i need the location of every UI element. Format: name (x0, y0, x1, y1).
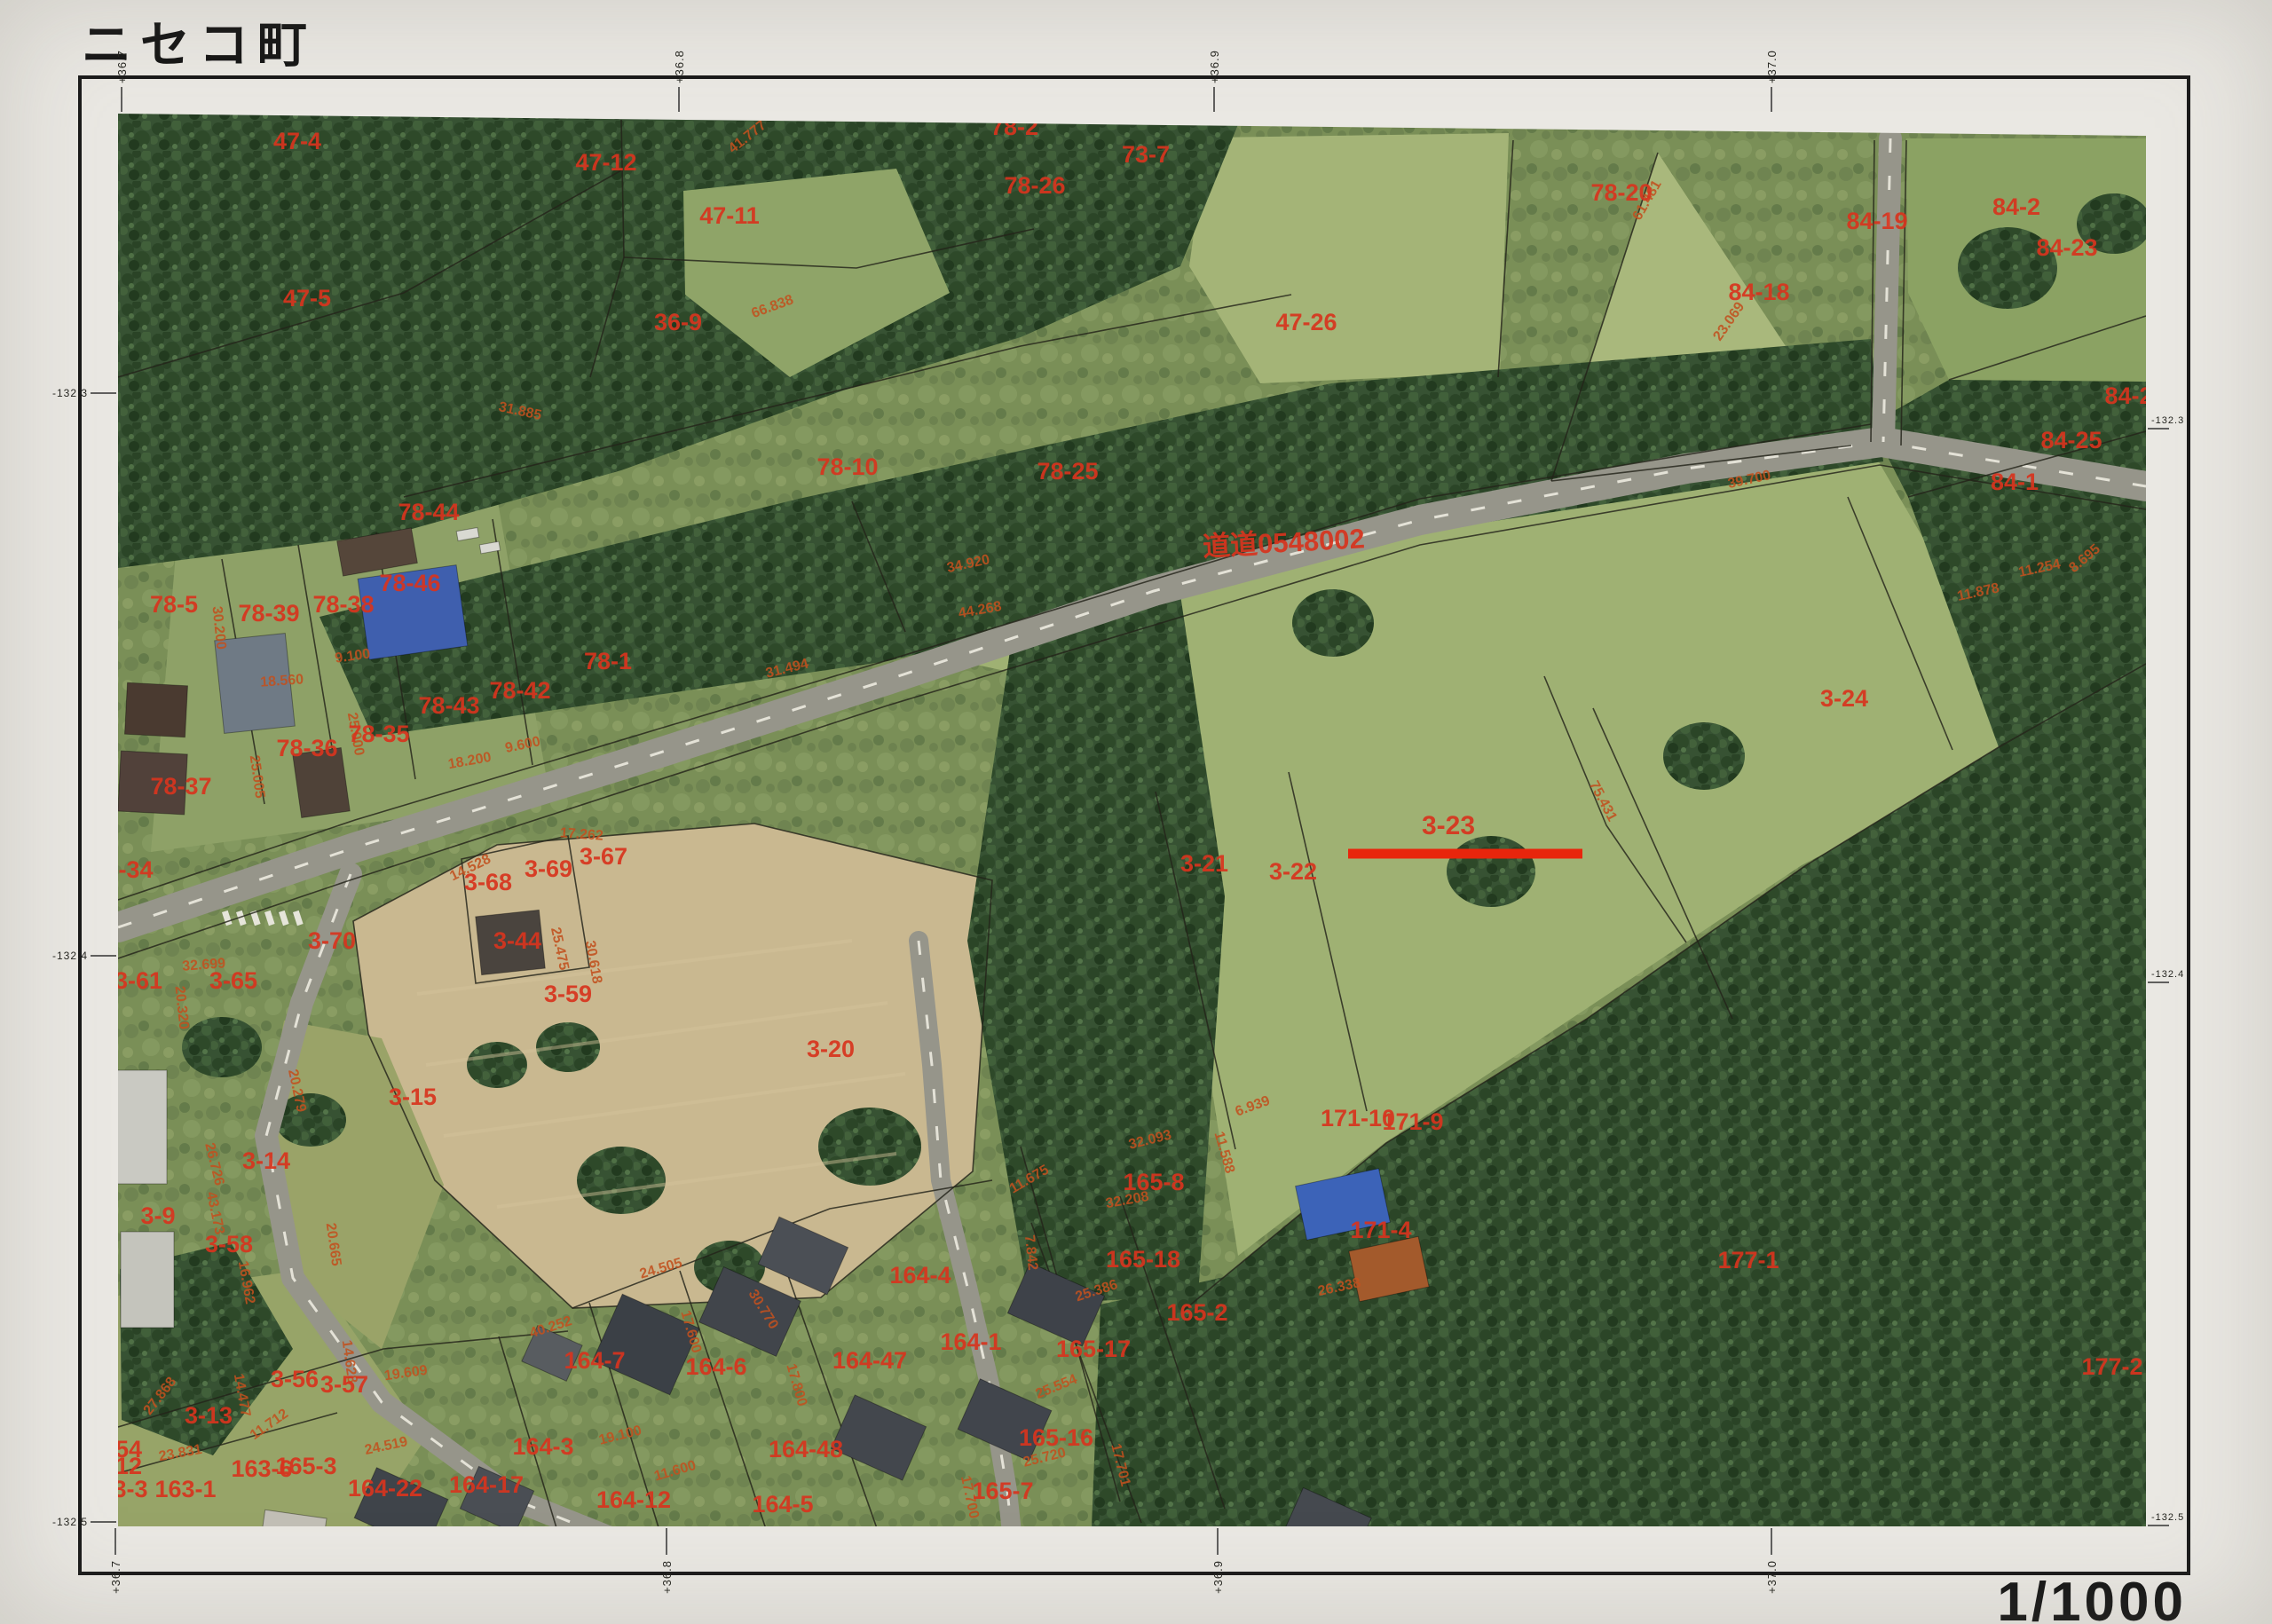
tree-clump (467, 1042, 527, 1088)
parcel-number-label: 84-26 (2104, 382, 2165, 409)
parcel-number-label: 165-16 (1019, 1424, 1093, 1451)
coordinate-tick-label: +37.0 (1765, 50, 1779, 83)
parcel-number-label: 165-8 (1123, 1169, 1184, 1195)
parcel-number-label: 3-9 (140, 1202, 175, 1229)
measurement-label: 18.560 (260, 672, 304, 690)
parcel-number-label: 3-68 (464, 869, 512, 895)
parcel-number-label: 36-9 (654, 309, 702, 335)
parcel-number-label: 163-1 (154, 1476, 216, 1502)
building-roof (121, 1232, 174, 1328)
coordinate-tick-label: -132.3 (52, 387, 88, 399)
parcel-number-label: 3-69 (525, 855, 572, 882)
parcel-number-label: 3-12 (94, 1453, 142, 1479)
parcel-number-label: 3-70 (308, 927, 356, 954)
tree-clump (577, 1147, 666, 1214)
parcel-number-label: 3-14 (242, 1147, 290, 1174)
parcel-number-label: 3-24 (1820, 685, 1868, 712)
parcel-number-label: 3-57 (320, 1371, 368, 1398)
parcel-number-label: 164-47 (832, 1347, 907, 1374)
parcel-number-label: 3-20 (807, 1036, 855, 1062)
parcel-number-label: 3-15 (389, 1084, 437, 1110)
coordinate-tick-label: -132.5 (52, 1516, 88, 1528)
tree-clump (1447, 836, 1535, 907)
parcel-number-label: 165-2 (1166, 1299, 1227, 1326)
parcel-number-label: 47-26 (1275, 309, 1337, 335)
parcel-number-label: 78-36 (276, 735, 337, 761)
coordinate-tick-label: +36.8 (673, 50, 686, 83)
coordinate-tick-label: -132.4 (52, 950, 88, 962)
coordinate-tick-label: +36.7 (109, 1560, 122, 1594)
tree-clump (182, 1017, 262, 1077)
parcel-number-label: 78-25 (1037, 458, 1098, 485)
coordinate-tick-label: +36.7 (115, 50, 129, 83)
parcel-number-label: 3-44 (493, 927, 541, 954)
parcel-number-label: 164-7 (564, 1347, 625, 1374)
highlighted-parcel-label: 3-23 (1422, 811, 1475, 840)
parcel-number-label: 47-11 (699, 202, 760, 229)
coordinate-tick-label: -132.5 (2151, 1512, 2184, 1523)
tree-clump (1292, 589, 1374, 657)
tree-clump (1663, 722, 1745, 790)
parcel-number-label: 177-2 (2081, 1353, 2142, 1380)
parcel-number-label: 78-39 (238, 600, 299, 627)
parcel-number-label: 171-4 (1350, 1217, 1411, 1243)
building-roof (117, 1070, 167, 1184)
parcel-number-label: 84-23 (2036, 234, 2097, 261)
coordinate-tick-label: +37.0 (1765, 1560, 1779, 1594)
measurement-label: 17.262 (559, 825, 603, 843)
parcel-number-label: 78-44 (398, 499, 459, 525)
map-scale: 1/1000 (1997, 1571, 2187, 1624)
parcel-number-label: 84-2 (1992, 193, 2040, 220)
coordinate-tick-label: +36.9 (1208, 50, 1221, 83)
parcel-number-label: 84-1 (1991, 469, 2039, 495)
parcel-number-label: 78-10 (816, 453, 878, 480)
tree-clump (754, 531, 852, 605)
parcel-number-label: 78-5 (150, 591, 198, 618)
parcel-number-label: 78-38 (312, 591, 374, 618)
parcel-number-label: 163-6 (231, 1455, 292, 1482)
parcel-number-label: 164-3 (512, 1433, 573, 1460)
parcel-number-label: 3-59 (544, 981, 592, 1007)
parcel-number-label: 78-1 (584, 648, 632, 674)
parcel-number-label: 164-4 (889, 1262, 951, 1289)
parcel-number-label: 84-25 (2040, 427, 2102, 453)
parcel-number-label: 3-13 (185, 1402, 233, 1429)
coordinate-tick-label: -132.4 (2151, 969, 2184, 980)
parcel-number-label: 3-58 (205, 1231, 253, 1257)
parcel-number-label: 164-5 (752, 1491, 813, 1518)
building-roof (125, 682, 188, 737)
parcel-number-label: 177-1 (1717, 1247, 1779, 1273)
parcel-number-label: 163-3 (86, 1476, 147, 1502)
coordinate-tick-label: -132.3 (2151, 415, 2184, 426)
parcel-number-label: 164-17 (449, 1471, 524, 1498)
parcel-number-label: 171-9 (1382, 1108, 1443, 1135)
parcel-number-label: 164-6 (685, 1353, 746, 1380)
coordinate-tick-label: +36.9 (1211, 1560, 1225, 1594)
parcel-number-label: 3-22 (1269, 858, 1317, 885)
parcel-number-label: 78-26 (1004, 172, 1065, 199)
building-roof (259, 1510, 327, 1560)
scanned-cadastral-map-sheet: ニセコ町 41.77766.83831.88561.48123.06939.70… (0, 0, 2272, 1624)
parcel-number-label: 84-19 (1846, 208, 1907, 234)
parcel-number-label: 3-65 (209, 967, 257, 994)
parcel-number-label: 164-12 (596, 1486, 671, 1513)
parcel-number-label: 78-37 (150, 773, 211, 800)
parcel-number-label: 78-43 (418, 692, 479, 719)
parcel-number-label: 78-35 (348, 721, 409, 747)
parcel-number-label: 3-21 (1180, 850, 1228, 877)
parcel-number-label: 47-4 (273, 128, 321, 154)
aerial-photo-cadastral-map: 41.77766.83831.88561.48123.06939.70011.2… (0, 0, 2272, 1624)
parcel-number-label: 3-61 (114, 967, 162, 994)
coordinate-tick-label: +36.8 (660, 1560, 674, 1594)
parcel-number-label: 165-7 (972, 1478, 1033, 1504)
parcel-number-label: 78-20 (1590, 179, 1652, 206)
parcel-number-label: 3-67 (580, 843, 627, 870)
parcel-number-label: 78-46 (379, 570, 440, 596)
parcel-number-label: 84-18 (1728, 279, 1789, 305)
tree-clump (818, 1108, 921, 1186)
parcel-number-label: 3-56 (271, 1366, 319, 1392)
parcel-number-label: 73-7 (1122, 141, 1170, 168)
parcel-number-label: 47-12 (575, 149, 636, 176)
photo-area: 41.77766.83831.88561.48123.06939.70011.2… (86, 114, 2165, 1617)
parcel-number-label: 165-17 (1056, 1336, 1131, 1362)
parcel-number-label: 164-48 (769, 1436, 843, 1462)
parcel-number-label: 164-1 (940, 1328, 1001, 1355)
parcel-number-label: 78-34 (91, 856, 153, 883)
parcel-number-label: 165-18 (1106, 1246, 1180, 1273)
parcel-number-label: 164-22 (348, 1475, 422, 1502)
parcel-number-label: 78-42 (489, 677, 550, 704)
parcel-number-label: 47-5 (283, 285, 331, 311)
